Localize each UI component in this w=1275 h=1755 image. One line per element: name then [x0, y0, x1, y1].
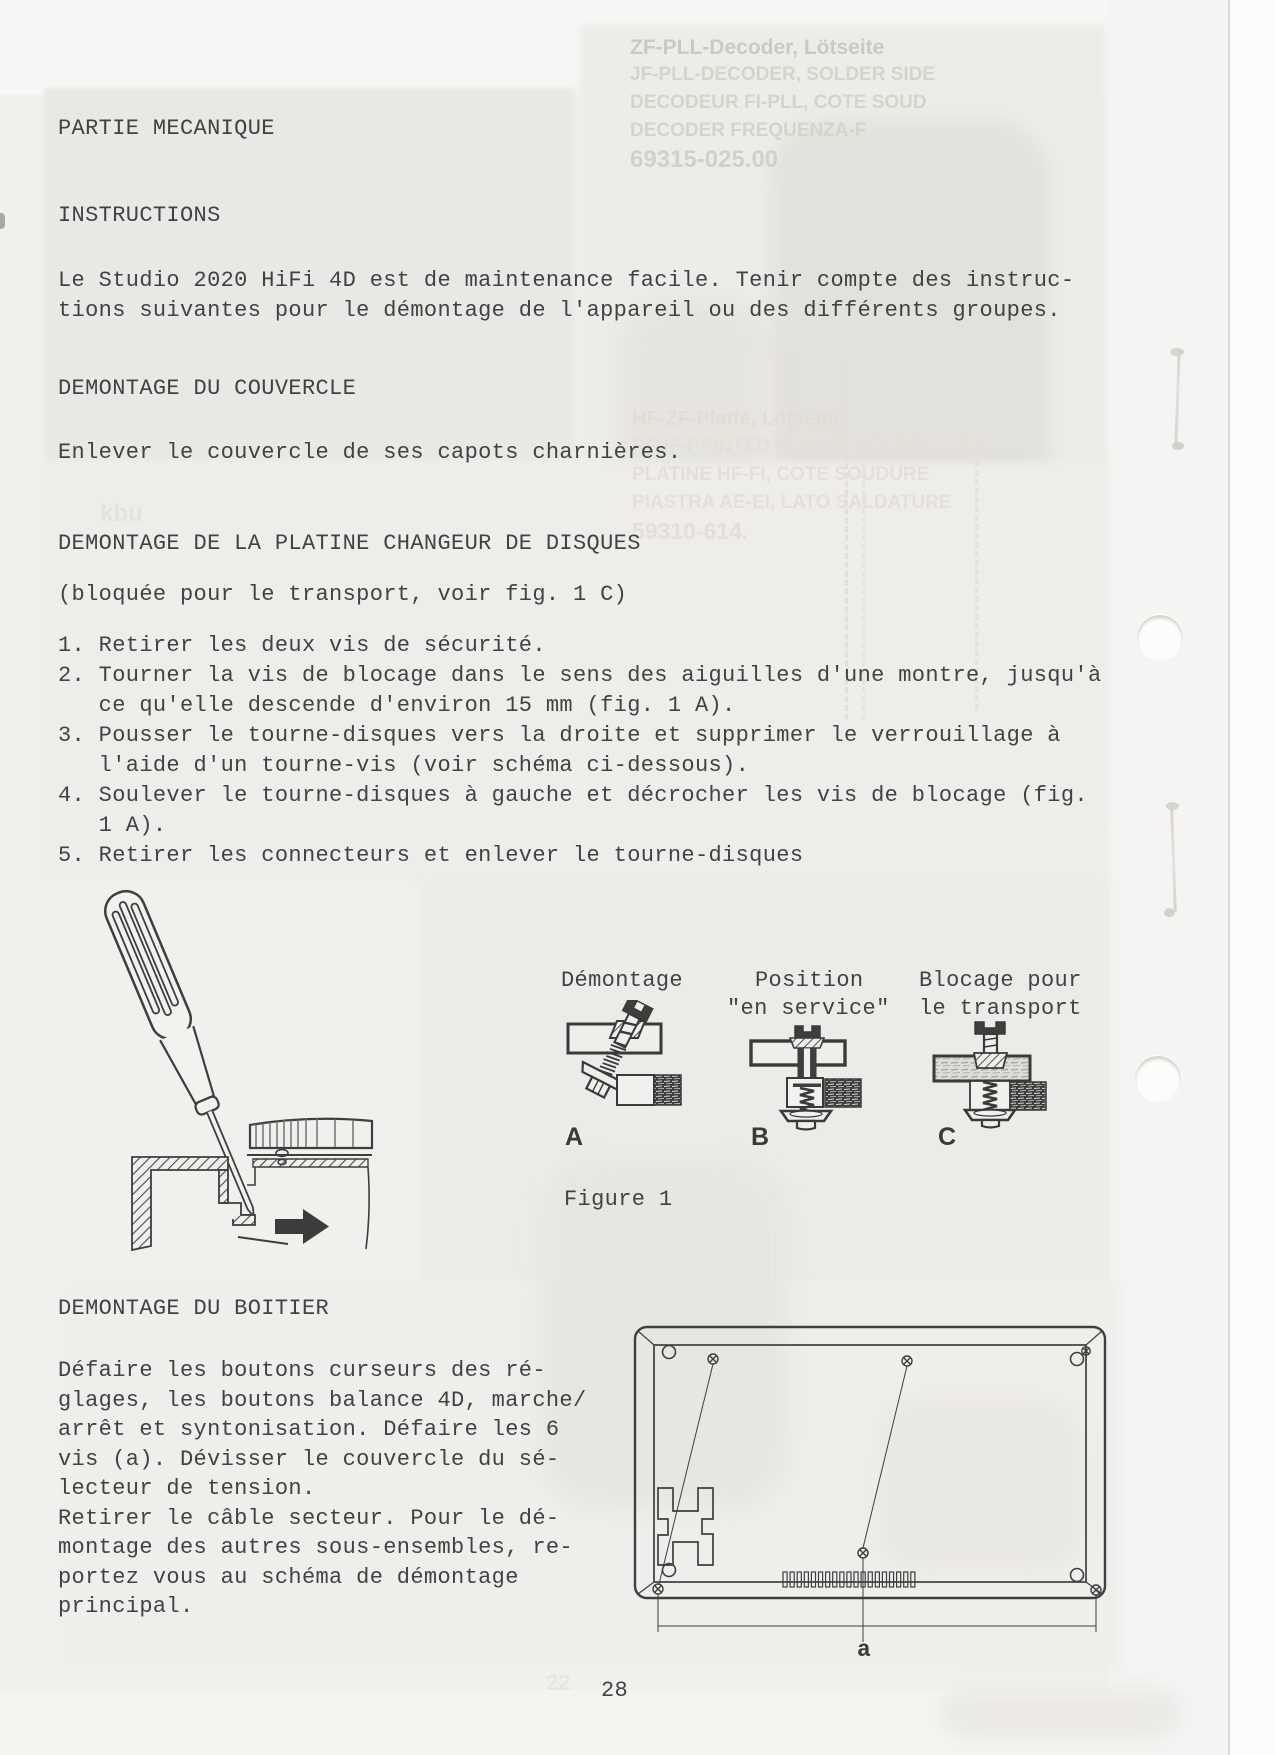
svg-text:a: a	[857, 1637, 871, 1663]
